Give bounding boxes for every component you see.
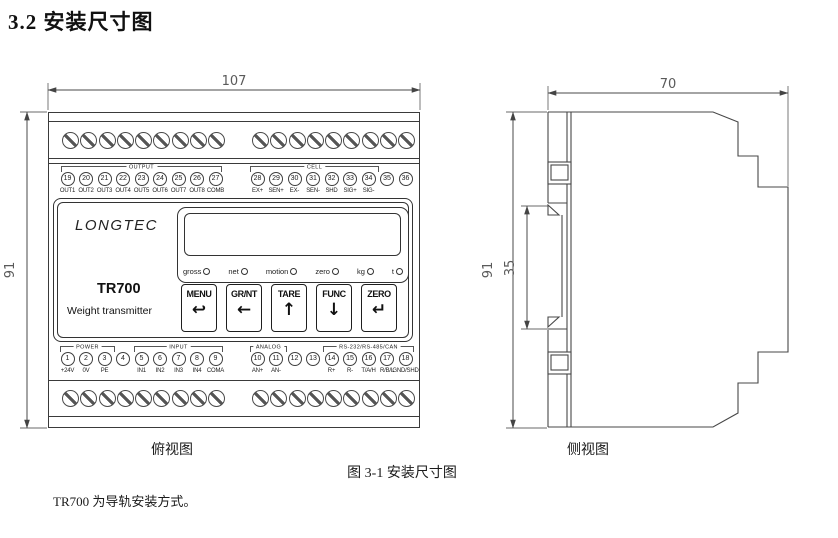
status-indicator: motion xyxy=(266,267,298,276)
terminal-list: 28 EX+ 29 SEN+ 30 EX- xyxy=(249,172,414,195)
screw-head-icon xyxy=(362,390,379,407)
terminal-number: 8 xyxy=(190,352,204,366)
screw-head-icon xyxy=(135,132,152,149)
dim-label-91-left: 91 xyxy=(3,262,18,279)
screw-head-icon xyxy=(343,390,360,407)
terminal-label: SEN- xyxy=(306,188,320,195)
terminal: 32 SHD xyxy=(323,172,340,195)
status-indicator: kg xyxy=(357,267,374,276)
dim-rail-height: 35 xyxy=(503,206,552,329)
terminal-label: EX- xyxy=(290,188,299,195)
terminal-number: 15 xyxy=(343,352,357,366)
terminal-number: 20 xyxy=(79,172,93,186)
button-arrow-icon: ↓ xyxy=(327,302,341,319)
button-arrow-icon: ← xyxy=(237,302,251,319)
brand-logo: LONGTEC xyxy=(75,217,158,234)
terminal: 12 xyxy=(286,352,303,375)
terminal-number: 19 xyxy=(61,172,75,186)
screw-head-icon xyxy=(135,390,152,407)
status-indicator-row: gross net motion xyxy=(183,264,403,278)
terminal: 2 0V xyxy=(78,352,95,375)
terminal: 8 IN4 xyxy=(189,352,206,375)
button-arrow-icon: ↑ xyxy=(282,302,296,319)
front-panel: LONGTEC gross net xyxy=(53,198,413,342)
terminal: 24 OUT6 xyxy=(152,172,169,195)
screw-head-icon xyxy=(270,390,287,407)
panel-button: FUNC ↓ xyxy=(316,284,352,332)
terminal: 31 SEN- xyxy=(305,172,322,195)
terminal-number: 12 xyxy=(288,352,302,366)
terminal: 27 COMB xyxy=(207,172,224,195)
terminal-block-output: OUTPUT 19 OUT1 20 OUT2 xyxy=(59,164,224,198)
terminal-label: AN- xyxy=(271,368,281,375)
terminal: 15 R- xyxy=(342,352,359,375)
terminal-number: 27 xyxy=(209,172,223,186)
terminal-number: 14 xyxy=(325,352,339,366)
indicator-label: t xyxy=(392,267,394,276)
terminal: 36 xyxy=(397,172,414,195)
terminal-number: 28 xyxy=(251,172,265,186)
terminal-number: 23 xyxy=(135,172,149,186)
terminal-number: 2 xyxy=(79,352,93,366)
indicator-led-icon xyxy=(396,268,403,275)
terminal-row-top: OUTPUT 19 OUT1 20 OUT2 xyxy=(49,164,419,198)
terminal: 18 GND/SHD xyxy=(397,352,414,375)
display-bezel: gross net motion xyxy=(177,207,409,283)
terminal-block-analog-comm: ANALOG RS-232/RS-485/CAN 10 AN+ 11 xyxy=(249,344,414,380)
panel-button: MENU ↩ xyxy=(181,284,217,332)
terminal-label: OUT3 xyxy=(97,188,112,195)
screw-terminal-row-bottom xyxy=(49,380,419,417)
terminal-label: IN1 xyxy=(137,368,146,375)
terminal-number: 31 xyxy=(306,172,320,186)
indicator-label: motion xyxy=(266,267,289,276)
indicator-led-icon xyxy=(332,268,339,275)
terminal-block-cell: CELL 28 EX+ 29 SEN+ xyxy=(249,164,414,198)
status-indicator: zero xyxy=(315,267,339,276)
terminal: 35 xyxy=(379,172,396,195)
terminal: 29 SEN+ xyxy=(268,172,285,195)
figure-caption: 图 3-1 安装尺寸图 xyxy=(252,462,552,482)
terminal: 21 OUT3 xyxy=(96,172,113,195)
terminal-label: COMA xyxy=(207,368,224,375)
button-arrow-icon: ↵ xyxy=(372,302,386,319)
terminal-label: EX+ xyxy=(252,188,263,195)
screw-group xyxy=(62,131,225,149)
top-view-drawing: OUTPUT 19 OUT1 20 OUT2 xyxy=(48,112,420,428)
screw-head-icon xyxy=(190,390,207,407)
button-label: MENU xyxy=(187,289,212,299)
terminal-label: AN+ xyxy=(252,368,263,375)
screw-head-icon xyxy=(153,132,170,149)
status-indicator: gross xyxy=(183,267,210,276)
terminal-number: 7 xyxy=(172,352,186,366)
terminal: 9 COMA xyxy=(207,352,224,375)
terminal: 30 EX- xyxy=(286,172,303,195)
screw-head-icon xyxy=(362,132,379,149)
terminal: 26 OUT8 xyxy=(189,172,206,195)
terminal-label: GND/SHD xyxy=(392,368,418,375)
dim-label-107: 107 xyxy=(222,74,247,89)
screw-terminal-row-top xyxy=(49,122,419,159)
terminal-number: 22 xyxy=(116,172,130,186)
screw-head-icon xyxy=(80,390,97,407)
button-arrow-icon: ↩ xyxy=(192,302,206,319)
terminal: 5 IN1 xyxy=(133,352,150,375)
screw-head-icon xyxy=(62,132,79,149)
terminal-number: 34 xyxy=(362,172,376,186)
button-label: FUNC xyxy=(322,289,345,299)
terminal-number: 21 xyxy=(98,172,112,186)
terminal: 34 SIG- xyxy=(360,172,377,195)
terminal: 3 PE xyxy=(96,352,113,375)
screw-head-icon xyxy=(172,390,189,407)
terminal-number: 35 xyxy=(380,172,394,186)
terminal-row-bottom: POWER INPUT 1 +24V 2 0V xyxy=(49,344,419,380)
screw-head-icon xyxy=(398,390,415,407)
terminal-label: SHD xyxy=(325,188,337,195)
screw-head-icon xyxy=(380,132,397,149)
manual-page: 3.2 安装尺寸图 107 91 70 xyxy=(0,0,838,538)
screw-head-icon xyxy=(99,132,116,149)
indicator-led-icon xyxy=(367,268,374,275)
terminal-label: 0V xyxy=(83,368,90,375)
terminal-list: 10 AN+ 11 AN- 12 xyxy=(249,352,414,375)
terminal: 13 xyxy=(305,352,322,375)
screw-head-icon xyxy=(289,132,306,149)
screw-group xyxy=(252,131,415,149)
terminal-label: IN2 xyxy=(156,368,165,375)
terminal-number: 1 xyxy=(61,352,75,366)
group-label-comm: RS-232/RS-485/CAN xyxy=(336,344,401,350)
indicator-led-icon xyxy=(203,268,210,275)
model-subtitle: Weight transmitter xyxy=(67,305,152,317)
terminal-number: 32 xyxy=(325,172,339,186)
screw-head-icon xyxy=(270,132,287,149)
top-view-caption: 俯视图 xyxy=(122,439,222,459)
screw-group xyxy=(62,390,225,408)
terminal-label: OUT2 xyxy=(78,188,93,195)
terminal-label: COMB xyxy=(207,188,224,195)
screw-head-icon xyxy=(117,132,134,149)
terminal-number: 5 xyxy=(135,352,149,366)
group-label-output: OUTPUT xyxy=(126,164,157,170)
dim-topview-width: 107 xyxy=(48,74,420,110)
keypad: MENU ↩ GR/NT ← TARE ↑ FUNC xyxy=(181,284,397,333)
terminal-number: 29 xyxy=(269,172,283,186)
screw-head-icon xyxy=(208,390,225,407)
indicator-label: zero xyxy=(315,267,330,276)
terminal: 23 OUT5 xyxy=(133,172,150,195)
screw-head-icon xyxy=(153,390,170,407)
body-text: TR700 为导轨安装方式。 xyxy=(53,491,196,510)
dim-label-91-side: 91 xyxy=(481,262,496,279)
terminal: 20 OUT2 xyxy=(78,172,95,195)
screw-head-icon xyxy=(307,132,324,149)
terminal-label: IN3 xyxy=(174,368,183,375)
indicator-led-icon xyxy=(241,268,248,275)
terminal-number: 18 xyxy=(399,352,413,366)
screw-head-icon xyxy=(62,390,79,407)
screw-head-icon xyxy=(398,132,415,149)
terminal: 4 xyxy=(115,352,132,375)
group-label-input: INPUT xyxy=(166,344,191,350)
terminal-number: 24 xyxy=(153,172,167,186)
terminal-number: 9 xyxy=(209,352,223,366)
terminal-label: SEN+ xyxy=(268,188,283,195)
dim-label-70: 70 xyxy=(660,77,677,92)
screw-group xyxy=(252,390,415,408)
terminal-number: 11 xyxy=(269,352,283,366)
button-label: GR/NT xyxy=(231,289,257,299)
terminal: 25 OUT7 xyxy=(170,172,187,195)
button-label: ZERO xyxy=(367,289,390,299)
terminal-label: OUT4 xyxy=(115,188,130,195)
screw-head-icon xyxy=(325,390,342,407)
terminal-number: 4 xyxy=(116,352,130,366)
screw-head-icon xyxy=(117,390,134,407)
terminal-label: SIG+ xyxy=(343,188,356,195)
terminal: 33 SIG+ xyxy=(342,172,359,195)
terminal-label: OUT6 xyxy=(152,188,167,195)
indicator-label: gross xyxy=(183,267,201,276)
screw-head-icon xyxy=(343,132,360,149)
terminal-label: OUT8 xyxy=(189,188,204,195)
screw-head-icon xyxy=(325,132,342,149)
dim-topview-height: 91 xyxy=(3,112,47,428)
terminal-label: T/A/H xyxy=(361,368,375,375)
terminal-label: R+ xyxy=(328,368,335,375)
terminal-number: 26 xyxy=(190,172,204,186)
terminal-list: 19 OUT1 20 OUT2 21 OUT3 xyxy=(59,172,224,195)
indicator-led-icon xyxy=(290,268,297,275)
terminal-label: PE xyxy=(101,368,109,375)
terminal: 7 IN3 xyxy=(170,352,187,375)
terminal-label: OUT5 xyxy=(134,188,149,195)
terminal: 22 OUT4 xyxy=(115,172,132,195)
side-view-caption: 侧视图 xyxy=(538,439,638,459)
indicator-label: net xyxy=(228,267,238,276)
status-indicator: t xyxy=(392,267,403,276)
screw-head-icon xyxy=(380,390,397,407)
screw-head-icon xyxy=(80,132,97,149)
screw-head-icon xyxy=(252,132,269,149)
group-label-cell: CELL xyxy=(304,164,325,170)
dim-label-35: 35 xyxy=(503,260,518,277)
screw-head-icon xyxy=(307,390,324,407)
panel-button: ZERO ↵ xyxy=(361,284,397,332)
terminal-number: 10 xyxy=(251,352,265,366)
terminal-number: 3 xyxy=(98,352,112,366)
terminal-number: 6 xyxy=(153,352,167,366)
terminal-label: OUT7 xyxy=(171,188,186,195)
terminal-number: 13 xyxy=(306,352,320,366)
lcd-display xyxy=(184,213,401,256)
group-label-analog: ANALOG xyxy=(253,344,284,350)
panel-button: TARE ↑ xyxy=(271,284,307,332)
terminal: 14 R+ xyxy=(323,352,340,375)
terminal-number: 33 xyxy=(343,172,357,186)
terminal-number: 30 xyxy=(288,172,302,186)
terminal-label: +24V xyxy=(61,368,74,375)
terminal-number: 36 xyxy=(399,172,413,186)
terminal-label: OUT1 xyxy=(60,188,75,195)
screw-head-icon xyxy=(208,132,225,149)
indicator-label: kg xyxy=(357,267,365,276)
group-label-power: POWER xyxy=(73,344,102,350)
status-indicator: net xyxy=(228,267,247,276)
screw-head-icon xyxy=(172,132,189,149)
housing-top-strip xyxy=(49,113,419,122)
terminal: 28 EX+ xyxy=(249,172,266,195)
panel-button: GR/NT ← xyxy=(226,284,262,332)
terminal: 6 IN2 xyxy=(152,352,169,375)
terminal: 11 AN- xyxy=(268,352,285,375)
screw-head-icon xyxy=(252,390,269,407)
terminal-label: IN4 xyxy=(193,368,202,375)
terminal: 19 OUT1 xyxy=(59,172,76,195)
terminal-number: 17 xyxy=(380,352,394,366)
terminal: 1 +24V xyxy=(59,352,76,375)
terminal-block-power-input: POWER INPUT 1 +24V 2 0V xyxy=(59,344,224,380)
terminal: 16 T/A/H xyxy=(360,352,377,375)
screw-head-icon xyxy=(99,390,116,407)
terminal-number: 16 xyxy=(362,352,376,366)
terminal-label: R- xyxy=(347,368,353,375)
terminal-list: 1 +24V 2 0V 3 PE xyxy=(59,352,224,375)
button-label: TARE xyxy=(278,289,300,299)
side-view-drawing xyxy=(548,112,788,427)
model-name: TR700 xyxy=(97,281,141,297)
terminal: 10 AN+ xyxy=(249,352,266,375)
screw-head-icon xyxy=(289,390,306,407)
terminal-label: SIG- xyxy=(363,188,375,195)
screw-head-icon xyxy=(190,132,207,149)
terminal-number: 25 xyxy=(172,172,186,186)
